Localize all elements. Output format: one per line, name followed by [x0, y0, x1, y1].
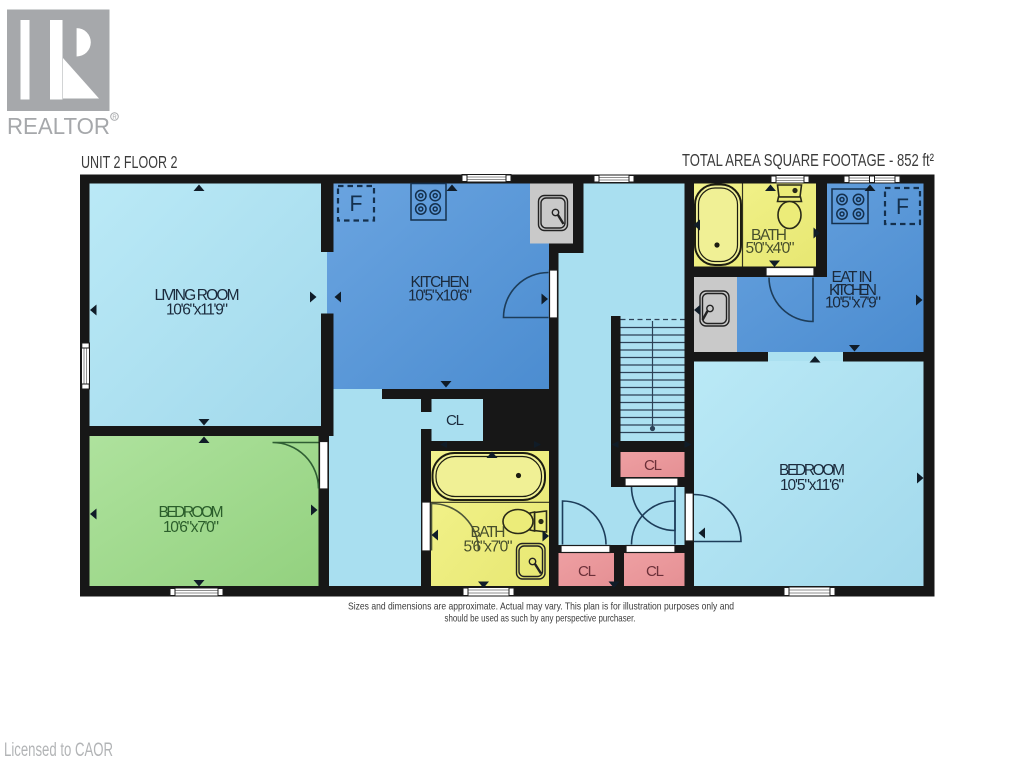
svg-text:CL: CL [646, 563, 664, 580]
svg-text:TOTAL AREA SQUARE FOOTAGE - 85: TOTAL AREA SQUARE FOOTAGE - 852 ft² [682, 150, 934, 170]
svg-text:10'6"x7'0": 10'6"x7'0" [163, 519, 219, 536]
svg-text:F: F [350, 191, 363, 216]
svg-text:R: R [112, 115, 117, 121]
svg-text:CL: CL [644, 457, 662, 474]
svg-text:Licensed to CAOR: Licensed to CAOR [4, 740, 113, 758]
svg-text:10'5"x7'9": 10'5"x7'9" [825, 295, 881, 312]
svg-text:5'6"x7'0": 5'6"x7'0" [464, 539, 513, 556]
svg-text:CL: CL [578, 563, 596, 580]
svg-text:10'5"x11'6": 10'5"x11'6" [780, 477, 844, 494]
svg-text:should be used as such by any: should be used as such by any perspectiv… [445, 613, 636, 625]
svg-text:F: F [896, 194, 909, 219]
svg-text:5'0"x4'0": 5'0"x4'0" [746, 240, 795, 257]
svg-text:CL: CL [446, 412, 464, 429]
svg-text:10'5"x10'6": 10'5"x10'6" [408, 288, 472, 305]
svg-text:UNIT 2 FLOOR 2: UNIT 2 FLOOR 2 [81, 152, 178, 172]
svg-text:REALTOR: REALTOR [7, 113, 110, 139]
svg-text:10'6"x11'9": 10'6"x11'9" [166, 302, 228, 319]
svg-text:Sizes and dimensions are appro: Sizes and dimensions are approximate. Ac… [348, 601, 734, 613]
